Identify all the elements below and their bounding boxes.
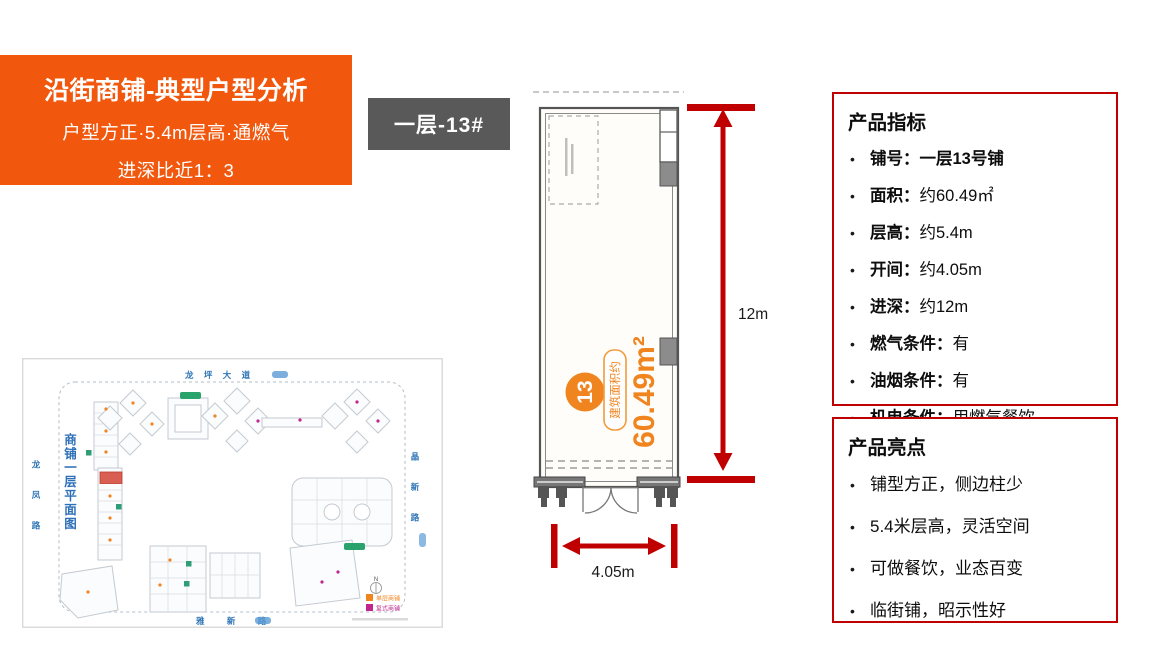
highlighted-unit (100, 472, 122, 484)
legend-swatch-single (366, 594, 373, 601)
highlights-title: 产品亮点 (848, 431, 1104, 460)
indicator-label: 层高： (870, 219, 920, 243)
road-left: 龙凤路 (31, 459, 41, 551)
highlights-list: 铺型方正，侧边柱少 5.4米层高，灵活空间 可做餐饮，业态百变 临街铺，昭示性好 (846, 470, 1104, 621)
product-highlights-panel: 产品亮点 铺型方正，侧边柱少 5.4米层高，灵活空间 可做餐饮，业态百变 临街铺… (832, 417, 1118, 623)
slide: 沿街商铺-典型户型分析 户型方正·5.4m层高·通燃气 进深比近1：3 一层-1… (0, 0, 1175, 661)
svg-text:N: N (374, 577, 378, 583)
caption-placeholder (352, 618, 408, 621)
indicator-item: 燃气条件：有 (846, 330, 1104, 354)
indicator-item: 层高：约5.4m (846, 219, 1104, 243)
width-dimension: 4.05m (551, 524, 678, 581)
indicator-value: 约4.05m (920, 256, 982, 280)
indicator-label: 开间： (870, 256, 920, 280)
depth-dimension: 12m (687, 104, 768, 483)
indicator-label: 进深： (870, 293, 920, 317)
indicator-value: 有 (953, 367, 970, 391)
road-bottom-tag (255, 617, 271, 624)
unit-tag: 一层-13# (368, 98, 510, 150)
indicator-label: 铺号： (870, 145, 920, 169)
highlight-item: 可做餐饮，业态百变 (846, 554, 1104, 579)
legend-label-duplex: 复式商铺 (376, 605, 400, 613)
page-title: 沿街商铺-典型户型分析 (0, 71, 352, 107)
site-plan: 龙 坪 大 道 龙凤路 晶新路 雅 新 路 商铺一层平面图 (22, 358, 443, 628)
width-dimension-label: 4.05m (591, 564, 634, 581)
double-swing-door (583, 487, 638, 513)
floor-plan: 13 建筑面积约 60.49m² (520, 80, 790, 585)
highlight-text: 5.4米层高，灵活空间 (870, 512, 1030, 537)
highlight-text: 临街铺，昭示性好 (870, 596, 1006, 621)
indicator-item: 开间：约4.05m (846, 256, 1104, 280)
site-plan-title: 商铺一层平面图 (62, 432, 76, 531)
unit-tag-label: 一层-13# (394, 109, 484, 139)
highlight-text: 可做餐饮，业态百变 (870, 554, 1023, 579)
area-label-pill: 建筑面积约 (604, 350, 626, 430)
product-indicators-panel: 产品指标 铺号：一层13号铺 面积：约60.49㎡ 层高：约5.4m 开间：约4… (832, 92, 1118, 406)
highlight-text: 铺型方正，侧边柱少 (870, 470, 1023, 495)
indicator-value: 约60.49㎡ (920, 182, 994, 206)
highlight-item: 铺型方正，侧边柱少 (846, 470, 1104, 495)
indicator-value: 约12m (920, 293, 969, 317)
highlight-item: 5.4米层高，灵活空间 (846, 512, 1104, 537)
indicator-label: 油烟条件： (870, 367, 953, 391)
depth-dimension-label: 12m (738, 306, 768, 323)
unit-number: 13 (574, 380, 597, 403)
indicator-label: 燃气条件： (870, 330, 953, 354)
indicators-title: 产品指标 (848, 106, 1104, 135)
road-top: 龙 坪 大 道 (184, 370, 254, 380)
indicator-label: 面积： (870, 182, 920, 206)
legend-swatch-duplex (366, 604, 373, 611)
legend-label-single: 单层商铺 (376, 595, 400, 603)
area-label: 建筑面积约 (608, 361, 622, 419)
indicators-list: 铺号：一层13号铺 面积：约60.49㎡ 层高：约5.4m 开间：约4.05m … (846, 145, 1104, 428)
indicator-item: 面积：约60.49㎡ (846, 182, 1104, 206)
page-subtitle-2: 进深比近1：3 (0, 157, 352, 183)
area-value: 60.49m² (628, 336, 661, 448)
road-top-tag (272, 371, 288, 378)
page-subtitle-1: 户型方正·5.4m层高·通燃气 (0, 119, 352, 145)
title-banner: 沿街商铺-典型户型分析 户型方正·5.4m层高·通燃气 进深比近1：3 (0, 55, 352, 185)
indicator-item: 油烟条件：有 (846, 367, 1104, 391)
road-right-tag (419, 533, 426, 547)
road-right: 晶新路 (410, 451, 420, 543)
highlight-item: 临街铺，昭示性好 (846, 596, 1104, 621)
indicator-value: 一层13号铺 (920, 145, 1004, 169)
unit-number-badge: 13 (566, 373, 605, 412)
indicator-value: 有 (953, 330, 970, 354)
indicator-item: 铺号：一层13号铺 (846, 145, 1104, 169)
indicator-value: 约5.4m (920, 219, 973, 243)
indicator-item: 进深：约12m (846, 293, 1104, 317)
